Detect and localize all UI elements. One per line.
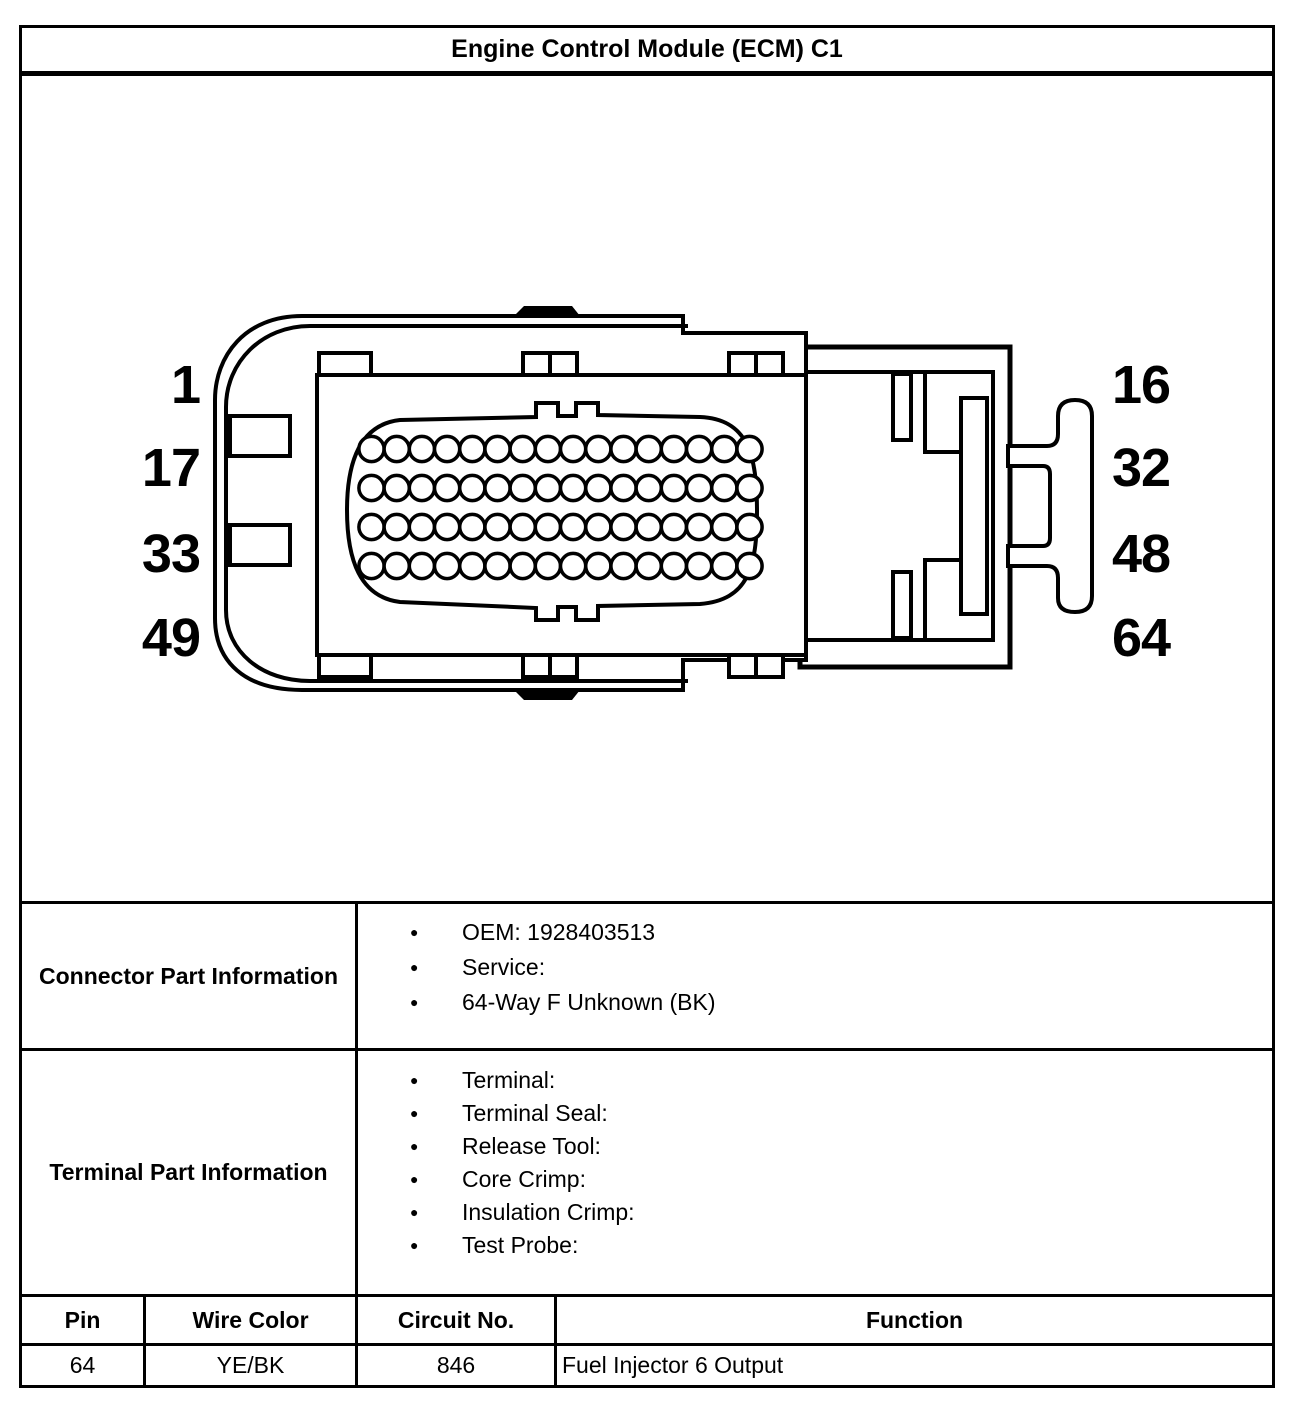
- pin-value-cell: 64: [22, 1346, 146, 1385]
- pin-label-17: 17: [100, 440, 200, 496]
- pin-header-cell: Pin: [22, 1297, 146, 1343]
- pin-label-48: 48: [1112, 526, 1222, 582]
- bullet-item: Terminal:: [358, 1064, 1272, 1097]
- bullet-item: Core Crimp:: [358, 1163, 1272, 1196]
- terminal-part-info-row: Terminal Part Information Terminal:Termi…: [22, 1051, 1272, 1297]
- pin-label-16: 16: [1112, 357, 1222, 413]
- terminal-part-info-list: Terminal:Terminal Seal:Release Tool:Core…: [358, 1051, 1272, 1262]
- connector-latch: [1008, 400, 1092, 612]
- function-header-cell: Function: [557, 1297, 1272, 1343]
- terminal-part-info-content: Terminal:Terminal Seal:Release Tool:Core…: [358, 1051, 1272, 1294]
- pin-label-49: 49: [100, 610, 200, 666]
- connector-part-info-list: OEM: 1928403513Service:64-Way F Unknown …: [358, 904, 1272, 1020]
- bullet-item: Service:: [358, 950, 1272, 985]
- circuit-no-value-cell: 846: [358, 1346, 557, 1385]
- bullet-item: OEM: 1928403513: [358, 915, 1272, 950]
- connector-right-housing: [800, 347, 1010, 667]
- connector-part-info-content: OEM: 1928403513Service:64-Way F Unknown …: [358, 904, 1272, 1048]
- circuit-no-header-cell: Circuit No.: [358, 1297, 557, 1343]
- function-value-cell: Fuel Injector 6 Output: [557, 1346, 1272, 1385]
- connector-diagram: [22, 76, 1272, 901]
- bullet-item: 64-Way F Unknown (BK): [358, 985, 1272, 1020]
- terminal-part-info-label: Terminal Part Information: [22, 1051, 358, 1294]
- pin-label-32: 32: [1112, 440, 1222, 496]
- pin-label-64: 64: [1112, 610, 1222, 666]
- pin-label-33: 33: [100, 526, 200, 582]
- connector-diagram-area: 1 17 33 49 16 32 48 64: [22, 76, 1272, 904]
- pin-table-header: Pin Wire Color Circuit No. Function: [22, 1297, 1272, 1346]
- bullet-item: Terminal Seal:: [358, 1097, 1272, 1130]
- bullet-item: Insulation Crimp:: [358, 1196, 1272, 1229]
- wire-color-value-cell: YE/BK: [146, 1346, 358, 1385]
- bullet-item: Release Tool:: [358, 1130, 1272, 1163]
- pin-label-1: 1: [100, 357, 200, 413]
- pin-table-row: 64 YE/BK 846 Fuel Injector 6 Output: [22, 1346, 1272, 1385]
- terminal-cavity: [347, 403, 762, 620]
- bullet-item: Test Probe:: [358, 1229, 1272, 1262]
- wire-color-header-cell: Wire Color: [146, 1297, 358, 1343]
- page-title: Engine Control Module (ECM) C1: [22, 28, 1272, 76]
- connector-part-info-label: Connector Part Information: [22, 904, 358, 1048]
- connector-info-sheet: Engine Control Module (ECM) C1: [19, 25, 1275, 1388]
- connector-part-info-row: Connector Part Information OEM: 19284035…: [22, 904, 1272, 1051]
